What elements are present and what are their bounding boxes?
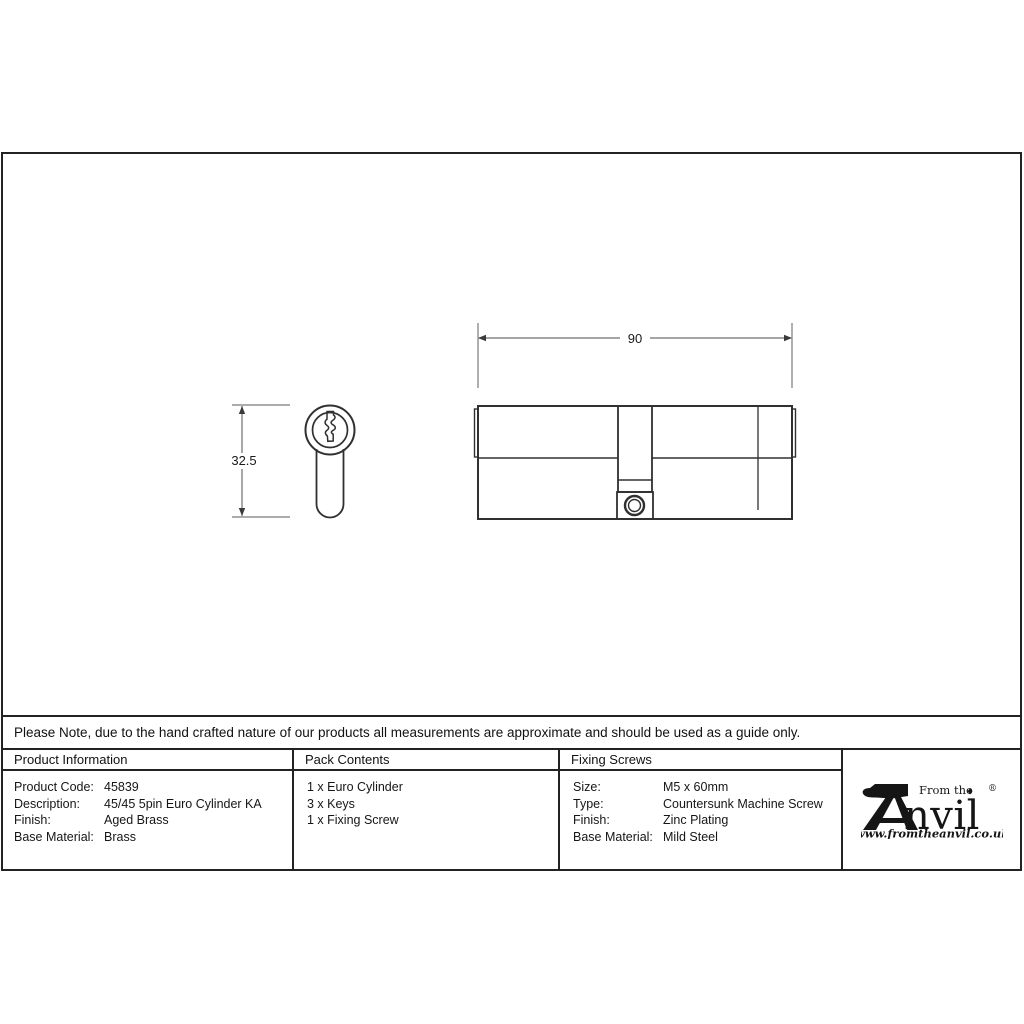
datasheet-page: 32.5 — [0, 0, 1024, 1024]
pack-item: 3 x Keys — [294, 796, 558, 813]
product-information-body: Product Code:45839 Description:45/45 5pi… — [3, 771, 292, 845]
height-dimension: 32.5 — [228, 405, 290, 517]
right-end-cap — [792, 409, 796, 457]
product-information-column: Product Information Product Code:45839 D… — [3, 750, 292, 869]
table-row: Base Material:Brass — [3, 829, 292, 846]
row-value: Zinc Plating — [663, 813, 728, 827]
measurement-note-bar: Please Note, due to the hand crafted nat… — [3, 717, 1020, 750]
length-dimension: 90 — [478, 323, 792, 388]
row-label: Base Material: — [14, 829, 104, 846]
table-row: Finish:Aged Brass — [3, 812, 292, 829]
technical-drawing-area: 32.5 — [3, 154, 1020, 717]
front-view — [306, 406, 355, 518]
side-view — [475, 406, 796, 519]
pack-item: 1 x Euro Cylinder — [294, 779, 558, 796]
pack-item: 1 x Fixing Screw — [294, 812, 558, 829]
table-row: Product Code:45839 — [3, 779, 292, 796]
cylinder-side-body — [478, 406, 792, 519]
brand-logo-cell: From the ♦ ® nvil www.fromtheanvil.co.uk — [841, 750, 1020, 869]
row-label: Finish: — [573, 812, 663, 829]
table-row: Finish:Zinc Plating — [560, 812, 841, 829]
row-label: Base Material: — [573, 829, 663, 846]
row-value: Countersunk Machine Screw — [663, 797, 823, 811]
measurement-note-text: Please Note, due to the hand crafted nat… — [14, 725, 800, 740]
pack-contents-column: Pack Contents 1 x Euro Cylinder 3 x Keys… — [292, 750, 558, 869]
table-row: Size:M5 x 60mm — [560, 779, 841, 796]
length-dim-label: 90 — [628, 331, 642, 346]
product-information-header: Product Information — [3, 750, 292, 771]
anvil-slab — [862, 784, 907, 799]
cylinder-body-profile — [317, 449, 344, 518]
row-label: Description: — [14, 796, 104, 813]
row-value: 45839 — [104, 780, 139, 794]
sheet-frame: 32.5 — [1, 152, 1022, 871]
fixing-screws-header: Fixing Screws — [560, 750, 841, 771]
row-label: Product Code: — [14, 779, 104, 796]
cylinder-drawing: 32.5 — [3, 154, 1020, 715]
left-end-cap — [475, 409, 479, 457]
row-label: Finish: — [14, 812, 104, 829]
row-value: Aged Brass — [104, 813, 169, 827]
letter-a-left-leg — [863, 797, 894, 830]
registered-trademark-icon: ® — [988, 784, 997, 794]
height-dim-label: 32.5 — [231, 453, 256, 468]
table-row: Type:Countersunk Machine Screw — [560, 796, 841, 813]
arrowhead-right-icon — [784, 335, 792, 341]
arrowhead-left-icon — [478, 335, 486, 341]
row-value: M5 x 60mm — [663, 780, 728, 794]
fixing-screws-body: Size:M5 x 60mm Type:Countersunk Machine … — [560, 771, 841, 845]
from-the-anvil-logo: From the ♦ ® nvil www.fromtheanvil.co.uk — [861, 781, 1003, 839]
arrowhead-up-icon — [239, 406, 245, 414]
spec-table: Product Information Product Code:45839 D… — [3, 750, 1020, 869]
row-value: Mild Steel — [663, 830, 718, 844]
row-label: Type: — [573, 796, 663, 813]
row-value: Brass — [104, 830, 136, 844]
row-label: Size: — [573, 779, 663, 796]
fixing-screws-column: Fixing Screws Size:M5 x 60mm Type:Counte… — [558, 750, 841, 869]
table-row: Base Material:Mild Steel — [560, 829, 841, 846]
table-row: Description:45/45 5pin Euro Cylinder KA — [3, 796, 292, 813]
retaining-screw-hole-inner — [629, 500, 641, 512]
pack-contents-body: 1 x Euro Cylinder 3 x Keys 1 x Fixing Sc… — [294, 771, 558, 829]
keyhole-profile — [325, 412, 335, 442]
row-value: 45/45 5pin Euro Cylinder KA — [104, 797, 262, 811]
arrowhead-down-icon — [239, 508, 245, 516]
brand-url-text: www.fromtheanvil.co.uk — [861, 826, 1003, 839]
pack-contents-header: Pack Contents — [294, 750, 558, 771]
cylinder-face-inner-circle — [313, 413, 348, 448]
